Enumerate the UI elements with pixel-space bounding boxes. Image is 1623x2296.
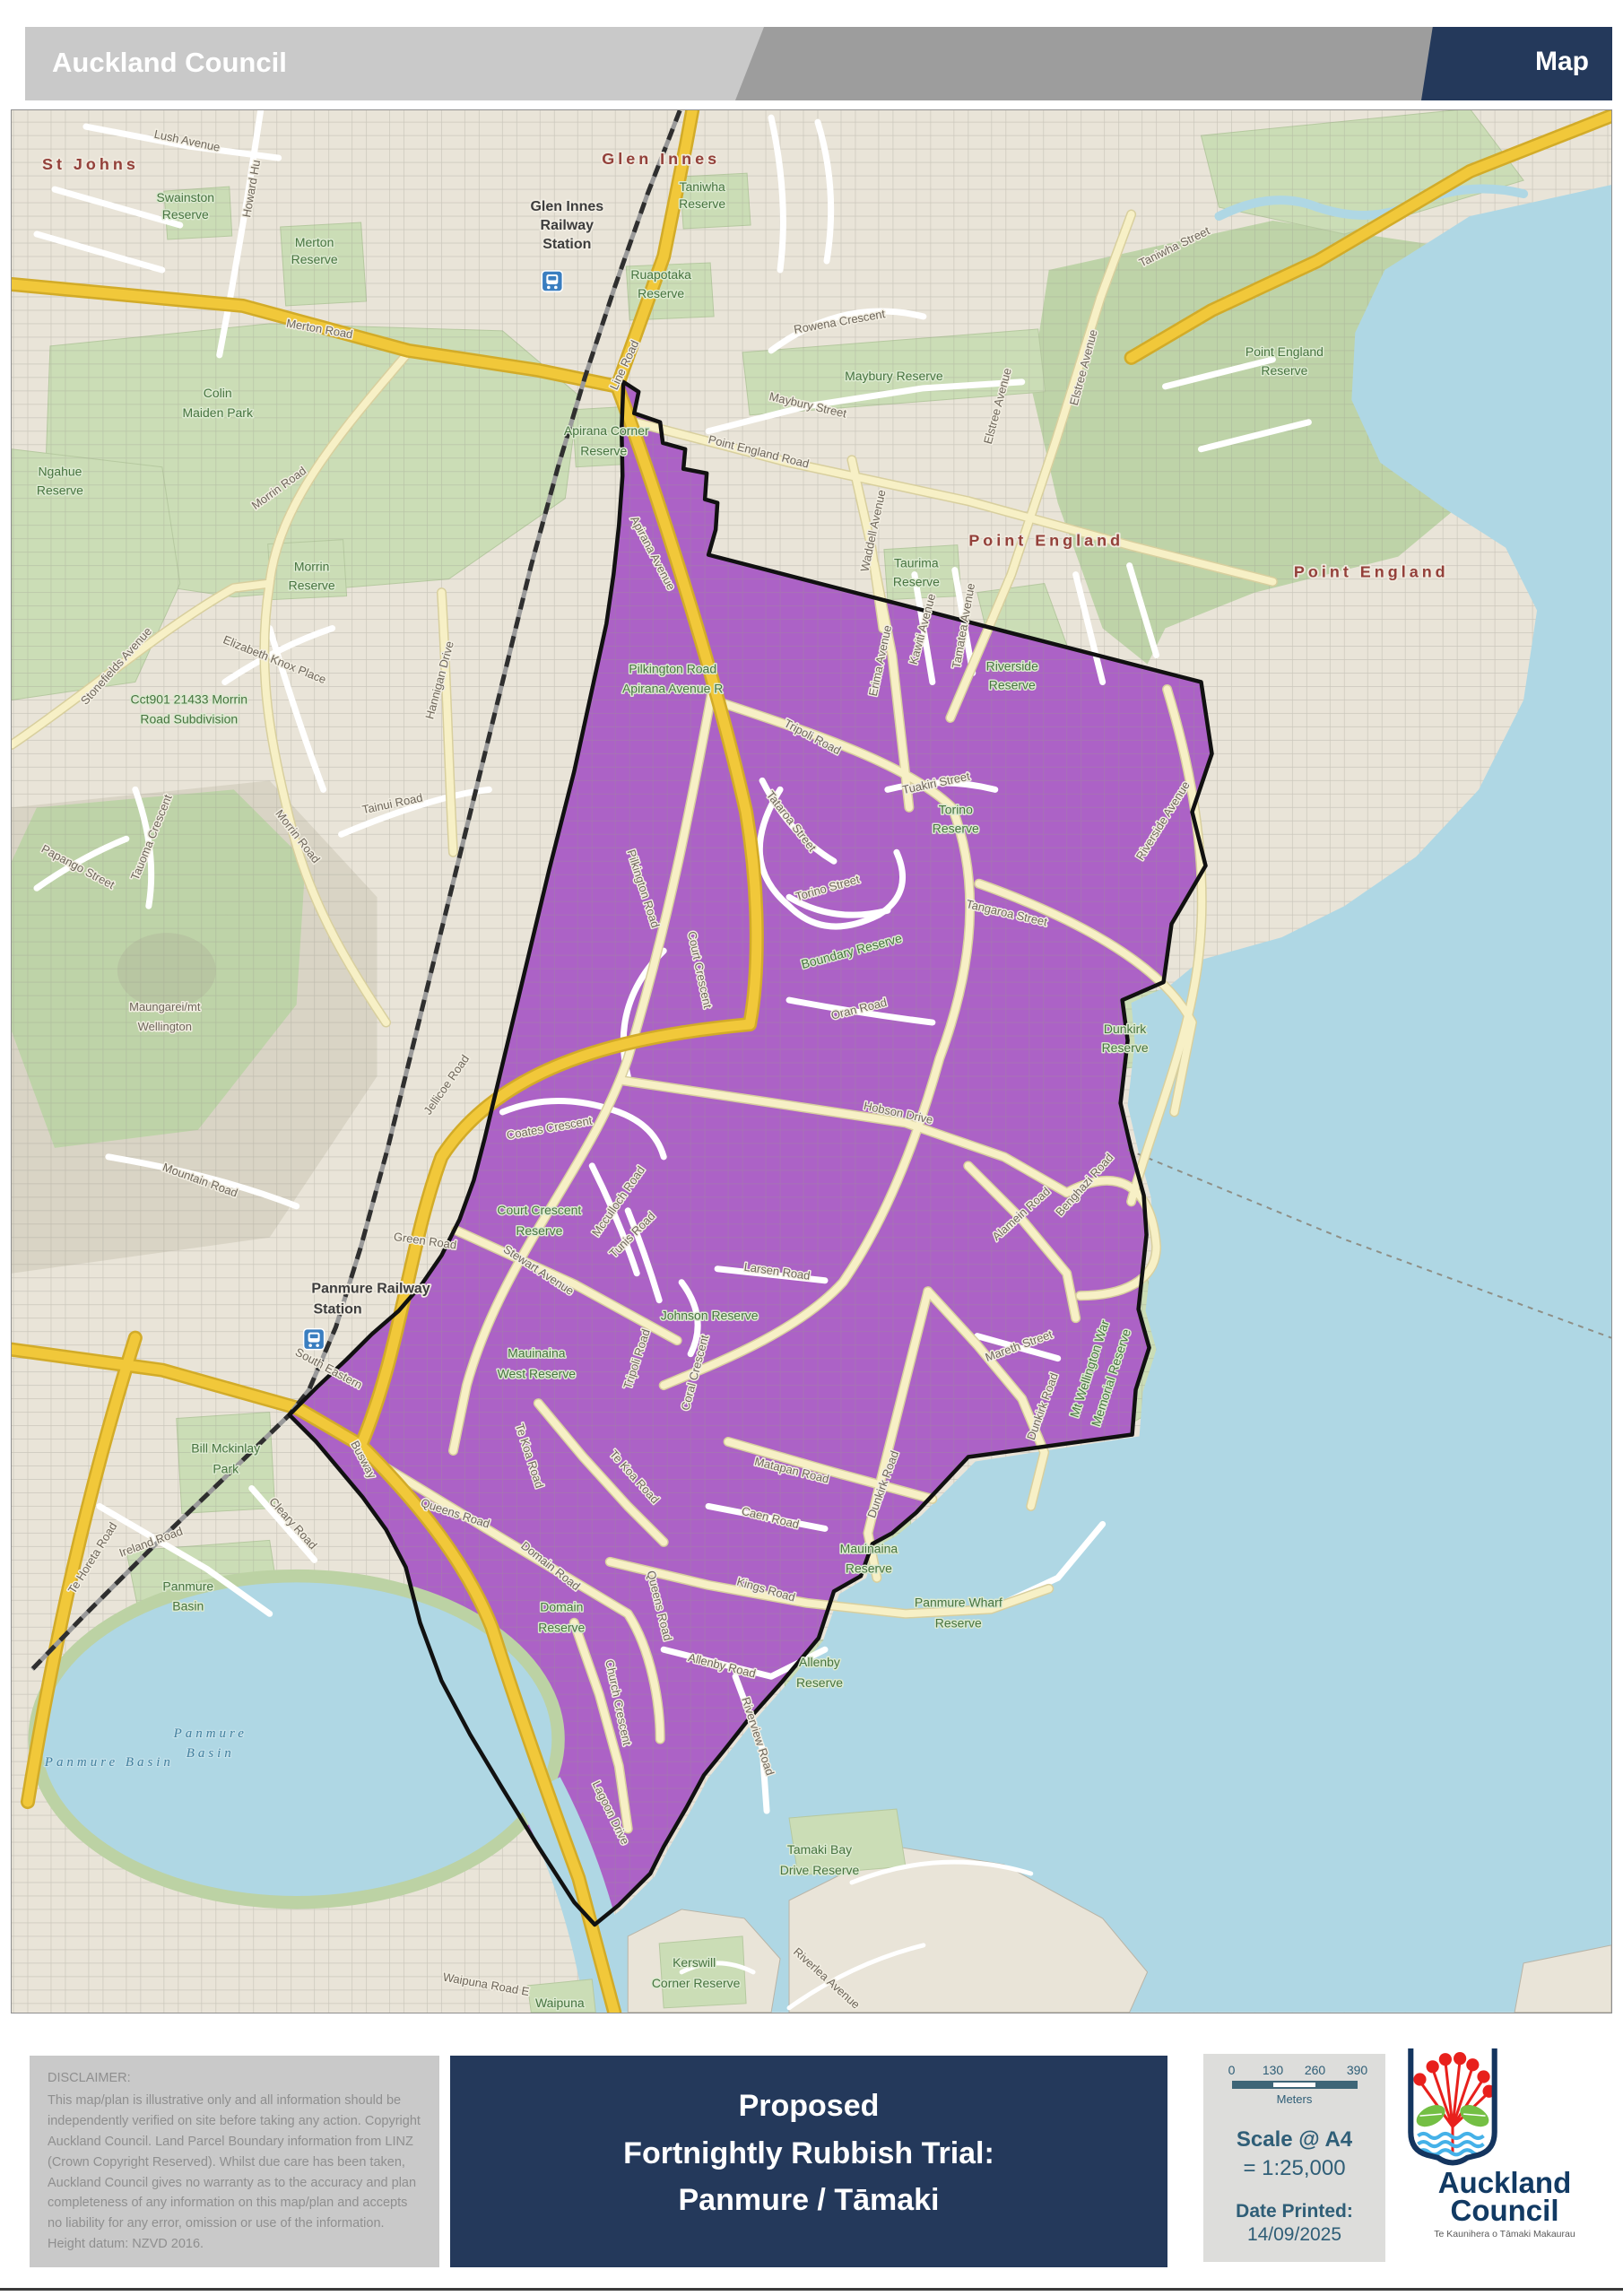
map-label: West Reserve bbox=[498, 1367, 577, 1381]
map-label: Railway bbox=[541, 218, 595, 233]
map-label: Dunkirk bbox=[1104, 1022, 1146, 1036]
map-label: Taurima bbox=[894, 556, 939, 570]
panmure-station-icon bbox=[304, 1329, 325, 1350]
map-label: Reserve bbox=[1261, 363, 1307, 378]
map-label: Morrin bbox=[294, 560, 330, 574]
map-label: Reserve bbox=[638, 286, 684, 300]
scale-panel: 0 130 260 390 Meters Scale @ A4 = 1:25,0… bbox=[1203, 2054, 1385, 2262]
map-label: Reserve bbox=[796, 1675, 843, 1690]
logo-subtitle: Te Kaunihera o Tāmaki Makaurau bbox=[1397, 2229, 1612, 2239]
map-label: Reserve bbox=[516, 1223, 562, 1238]
brand-title: Auckland Council bbox=[52, 47, 287, 79]
map-label: Ngahue bbox=[38, 465, 82, 479]
scale-bar bbox=[1232, 2081, 1358, 2089]
map-label: Pilkington Road bbox=[629, 661, 716, 675]
date-printed-label: Date Printed: bbox=[1203, 2201, 1385, 2222]
scale-unit: Meters bbox=[1203, 2092, 1385, 2106]
map-svg: Lush AvenueSt JohnsHoward HuSwainstonRes… bbox=[12, 110, 1611, 2013]
map-label: Riverside bbox=[986, 658, 1038, 673]
map-label: Apirana Corner bbox=[564, 423, 649, 438]
map-label: Reserve bbox=[1102, 1040, 1149, 1055]
disclaimer-panel: DISCLAIMER: This map/plan is illustrativ… bbox=[30, 2056, 439, 2267]
scale-tick-260: 260 bbox=[1305, 2063, 1325, 2077]
map-tab-label: Map bbox=[1535, 47, 1589, 77]
map-label: Swainston bbox=[157, 190, 214, 204]
map-label: Merton bbox=[295, 235, 334, 249]
map-label: Glen Innes bbox=[602, 150, 720, 168]
map-label: Cct901 21433 Morrin bbox=[131, 691, 247, 706]
map-label: Glen Innes bbox=[530, 199, 603, 214]
map-label: Road Subdivision bbox=[140, 711, 238, 726]
map-label: Maybury Reserve bbox=[845, 369, 943, 383]
map-canvas: Lush AvenueSt JohnsHoward HuSwainstonRes… bbox=[11, 109, 1612, 2013]
map-label: Panmure bbox=[173, 1726, 247, 1741]
map-label: Bill Mckinlay bbox=[191, 1441, 260, 1456]
map-label: Tamaki Bay bbox=[787, 1842, 852, 1857]
map-label: Taniwha bbox=[680, 179, 725, 194]
map-label: Point England bbox=[1294, 563, 1449, 581]
scale-label: Scale @ A4 bbox=[1203, 2127, 1385, 2152]
date-printed-value: 14/09/2025 bbox=[1203, 2224, 1385, 2246]
map-label: Johnson Reserve bbox=[661, 1309, 759, 1323]
map-label: Wellington bbox=[138, 1020, 192, 1033]
logo-emblem-icon bbox=[1397, 2048, 1508, 2167]
map-label: Maungarei/mt bbox=[129, 1000, 201, 1013]
logo-word-2: Council bbox=[1397, 2196, 1612, 2224]
map-label: Drive Reserve bbox=[780, 1863, 860, 1877]
map-label: Apirana Avenue R bbox=[622, 681, 723, 695]
page-bottom-rule bbox=[0, 2288, 1623, 2291]
map-label: Reserve bbox=[580, 444, 627, 458]
map-label: Allenby bbox=[799, 1655, 840, 1669]
map-label: Reserve bbox=[989, 677, 1036, 691]
map-label: Station bbox=[314, 1302, 362, 1318]
glen-innes-station-icon bbox=[542, 271, 562, 291]
header-banner: Auckland Council Map bbox=[0, 27, 1623, 100]
map-label: Panmure Wharf bbox=[915, 1595, 1002, 1609]
map-label: Reserve bbox=[289, 578, 335, 593]
map-label: Reserve bbox=[37, 483, 83, 498]
map-label: Basin bbox=[172, 1598, 204, 1613]
map-title-line-1: Proposed bbox=[450, 2083, 1167, 2130]
map-label: Reserve bbox=[291, 252, 338, 266]
disclaimer-heading: DISCLAIMER: bbox=[48, 2068, 421, 2089]
map-label: Reserve bbox=[933, 821, 979, 835]
map-label: Point England bbox=[1245, 344, 1324, 359]
scale-bar-ticks: 0 130 260 390 bbox=[1228, 2063, 1362, 2079]
map-title-panel: Proposed Fortnightly Rubbish Trial: Panm… bbox=[450, 2056, 1167, 2267]
map-label: St Johns bbox=[42, 155, 139, 173]
map-label: Domain bbox=[540, 1599, 583, 1613]
map-label: Court Crescent bbox=[497, 1203, 581, 1217]
map-label: Station bbox=[542, 237, 591, 252]
map-label: Point England bbox=[968, 532, 1124, 550]
map-label: Mauinaina bbox=[508, 1346, 566, 1361]
map-label: Ruapotaka bbox=[630, 267, 691, 282]
map-label: Panmure Basin bbox=[44, 1755, 174, 1770]
map-label: Maiden Park bbox=[183, 405, 253, 420]
map-label: Waipuna bbox=[535, 1996, 585, 2010]
map-label: Park bbox=[213, 1461, 239, 1475]
map-label: Panmure bbox=[162, 1578, 213, 1593]
map-label: Reserve bbox=[846, 1561, 892, 1575]
map-label: Torino bbox=[939, 802, 973, 816]
map-label: Reserve bbox=[893, 575, 940, 589]
map-title-line-2: Fortnightly Rubbish Trial: bbox=[450, 2130, 1167, 2178]
scale-value: = 1:25,000 bbox=[1203, 2156, 1385, 2181]
map-label: Mauinaina bbox=[840, 1541, 898, 1555]
map-label: Corner Reserve bbox=[652, 1976, 741, 1990]
logo-word-1: Auckland bbox=[1397, 2169, 1612, 2196]
map-document-page: Auckland Council Map bbox=[0, 0, 1623, 2296]
map-label: Reserve bbox=[679, 196, 725, 211]
scale-tick-390: 390 bbox=[1347, 2063, 1367, 2077]
scale-tick-130: 130 bbox=[1263, 2063, 1283, 2077]
map-label: Colin bbox=[204, 386, 232, 400]
map-label: Reserve bbox=[538, 1620, 585, 1634]
map-label: Panmure Railway bbox=[311, 1282, 430, 1297]
map-title-line-3: Panmure / Tāmaki bbox=[450, 2177, 1167, 2224]
map-label: Kerswill bbox=[673, 1955, 716, 1970]
map-label: Reserve bbox=[935, 1615, 982, 1630]
map-label: Reserve bbox=[162, 207, 209, 222]
auckland-council-logo: Auckland Council Te Kaunihera o Tāmaki M… bbox=[1397, 2048, 1612, 2269]
disclaimer-text: This map/plan is illustrative only and a… bbox=[48, 2091, 421, 2255]
banner-segment-mid bbox=[735, 27, 1453, 100]
scale-tick-0: 0 bbox=[1228, 2063, 1236, 2077]
map-label: Basin bbox=[187, 1746, 235, 1761]
